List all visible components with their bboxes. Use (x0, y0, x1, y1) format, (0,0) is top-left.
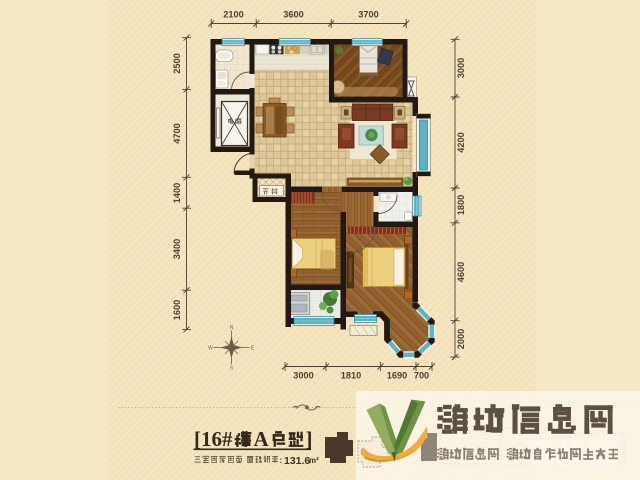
svg-text:1690: 1690 (387, 371, 407, 381)
svg-text:A: A (254, 427, 270, 451)
svg-text:3400: 3400 (172, 239, 182, 259)
svg-text:W: W (208, 346, 213, 352)
svg-text:3000: 3000 (456, 58, 466, 78)
svg-text:N: N (230, 325, 234, 331)
svg-text:[16#: [16# (194, 427, 233, 451)
svg-text:4700: 4700 (172, 123, 182, 143)
svg-text:2000: 2000 (456, 329, 466, 349)
svg-text:3600: 3600 (283, 10, 303, 20)
svg-text:m²: m² (309, 456, 319, 465)
svg-text:2500: 2500 (172, 53, 182, 73)
svg-text:2100: 2100 (223, 10, 243, 20)
svg-text:1400: 1400 (172, 183, 182, 203)
svg-text:1810: 1810 (341, 371, 361, 381)
svg-text:3700: 3700 (358, 10, 378, 20)
svg-text:700: 700 (414, 371, 429, 381)
svg-text:131.6: 131.6 (284, 455, 310, 467)
svg-text::: : (280, 456, 283, 465)
svg-text:1800: 1800 (456, 195, 466, 215)
svg-text:4200: 4200 (456, 132, 466, 152)
svg-text:]: ] (306, 427, 313, 451)
svg-text:4600: 4600 (456, 262, 466, 282)
svg-text:1600: 1600 (172, 300, 182, 320)
svg-text:3000: 3000 (293, 371, 313, 381)
